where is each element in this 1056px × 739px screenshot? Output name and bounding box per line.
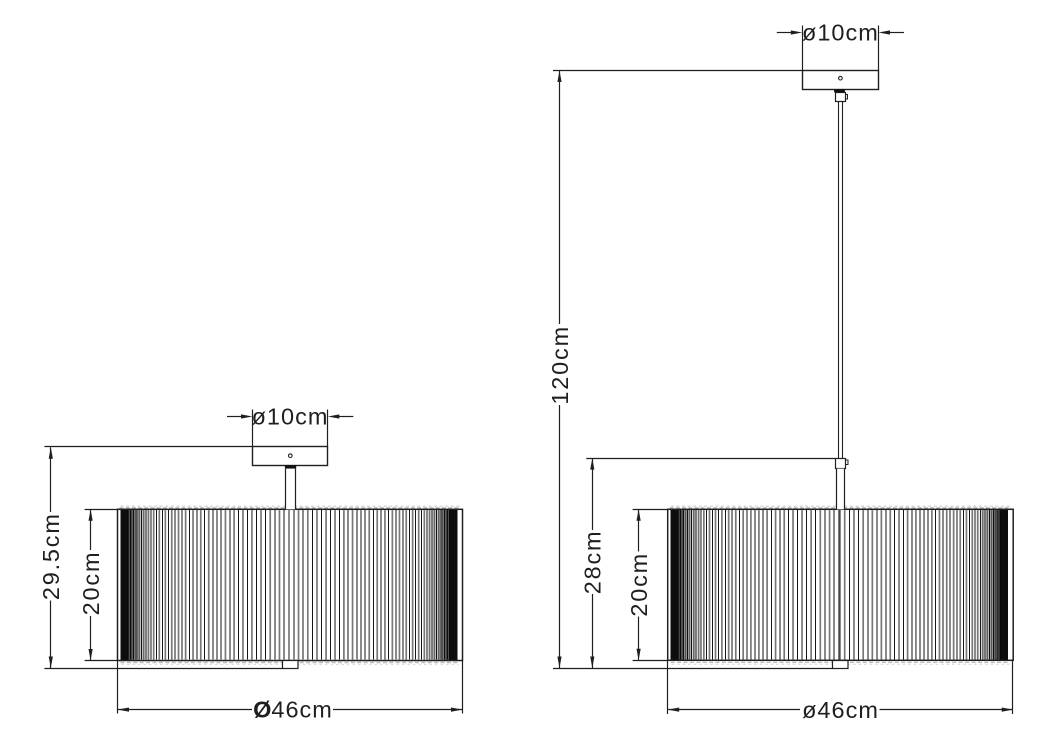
- svg-text:ø10cm: ø10cm: [252, 404, 329, 430]
- svg-text:120cm: 120cm: [547, 325, 573, 405]
- svg-text:ø10cm: ø10cm: [802, 20, 879, 46]
- svg-text:20cm: 20cm: [78, 551, 104, 616]
- svg-text:28cm: 28cm: [580, 530, 606, 595]
- svg-text:ø46cm: ø46cm: [802, 697, 879, 723]
- svg-text:20cm: 20cm: [626, 552, 652, 617]
- svg-text:Ø46cm: Ø46cm: [253, 697, 333, 723]
- svg-text:29.5cm: 29.5cm: [38, 512, 64, 600]
